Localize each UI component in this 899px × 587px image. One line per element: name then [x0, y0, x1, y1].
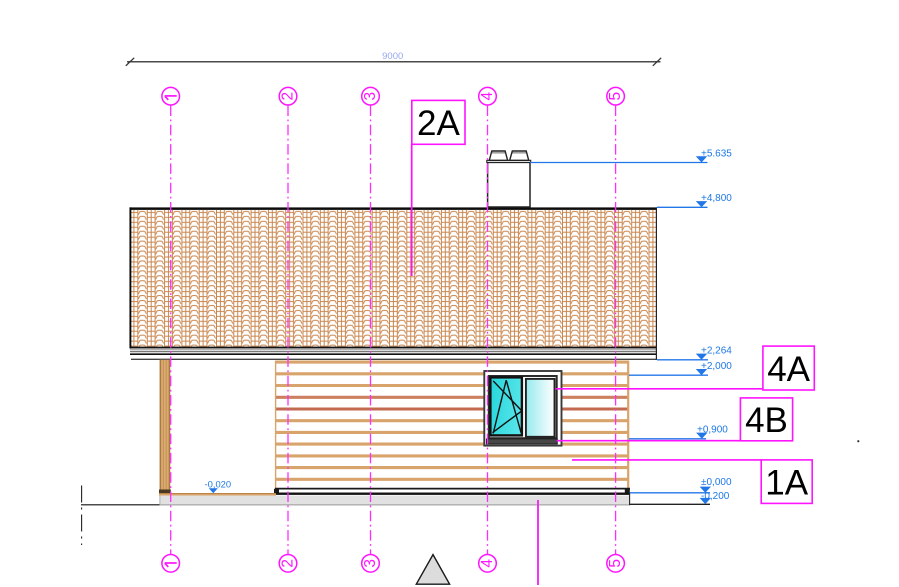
svg-text:5: 5	[607, 92, 624, 101]
svg-text:±0,000: ±0,000	[701, 477, 732, 488]
svg-text:3: 3	[362, 92, 379, 101]
svg-text:9000: 9000	[382, 51, 403, 62]
svg-text:4B: 4B	[745, 401, 788, 440]
svg-text:5: 5	[607, 559, 624, 568]
svg-text:2: 2	[280, 559, 297, 568]
svg-text:+2,000: +2,000	[701, 361, 732, 372]
svg-text:4A: 4A	[767, 350, 810, 389]
svg-text:+0,900: +0,900	[697, 425, 728, 436]
svg-text:+5.635: +5.635	[701, 148, 732, 159]
svg-text:4: 4	[479, 92, 496, 101]
svg-text:4: 4	[479, 559, 496, 568]
svg-text:+2,264: +2,264	[701, 345, 732, 356]
svg-text:2: 2	[280, 92, 297, 101]
svg-text:-0,200: -0,200	[701, 491, 730, 502]
svg-text:1A: 1A	[765, 463, 808, 502]
svg-text:+4,800: +4,800	[701, 193, 732, 204]
svg-text:-0,020: -0,020	[205, 478, 232, 489]
svg-text:2A: 2A	[417, 104, 460, 143]
svg-text:3: 3	[362, 559, 379, 568]
